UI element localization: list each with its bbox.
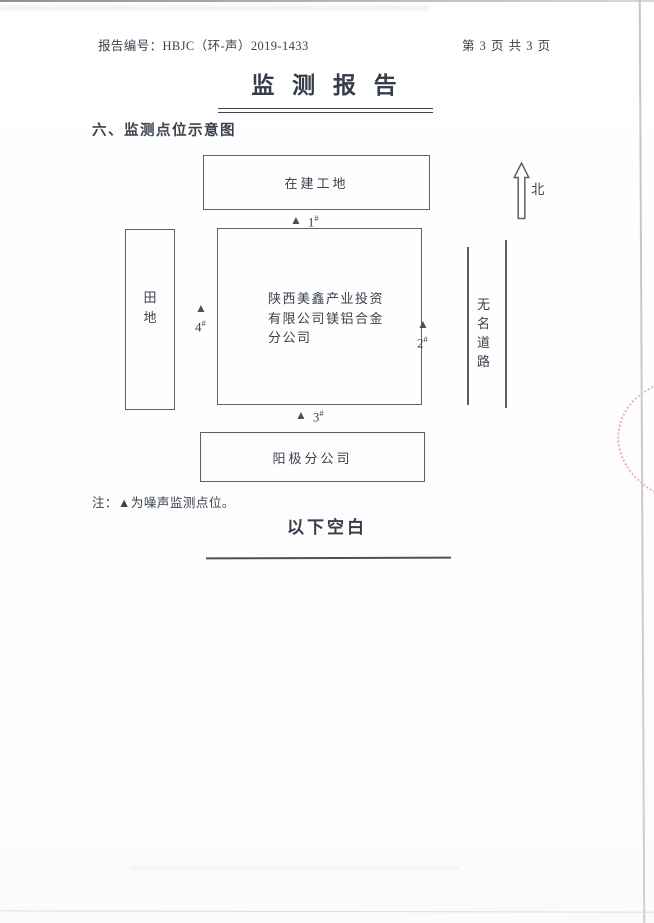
triangle-marker-icon: ▲ xyxy=(295,409,307,421)
scan-artifact xyxy=(130,866,460,870)
field-box: 田地 xyxy=(125,229,175,410)
blank-below-text: 以下空白 xyxy=(0,513,654,538)
point-label: 2# xyxy=(417,333,428,349)
triangle-marker-icon: ▲ xyxy=(290,214,302,226)
scan-edge-top xyxy=(0,0,654,2)
construction-site-box: 在建工地 xyxy=(203,155,430,210)
anode-branch-box: 阳极分公司 xyxy=(200,432,425,482)
road-line-right xyxy=(505,240,507,408)
company-name: 陕西美鑫产业投资 有限公司镁铝合金 分公司 xyxy=(268,289,400,348)
closing-rule xyxy=(206,557,451,559)
point-label: 3# xyxy=(313,407,324,423)
triangle-marker-icon: ▲ xyxy=(417,318,429,330)
company-name-line2: 有限公司镁铝合金 xyxy=(268,309,400,329)
north-arrow-icon xyxy=(513,162,530,220)
section-heading: 六、监测点位示意图 xyxy=(92,119,236,140)
anode-branch-label: 阳极分公司 xyxy=(272,448,352,467)
report-number: 报告编号：HBJC（环-声）2019-1433 xyxy=(98,35,309,54)
scan-edge-bottom xyxy=(0,910,654,912)
monitoring-point-1: ▲ 1# xyxy=(290,212,319,228)
company-name-line1: 陕西美鑫产业投资 xyxy=(268,289,400,309)
red-stamp-edge xyxy=(609,368,654,514)
title-underline xyxy=(218,108,433,113)
triangle-marker-icon: ▲ xyxy=(195,302,207,314)
page-indicator: 第 3 页 共 3 页 xyxy=(462,35,551,54)
field-label: 田地 xyxy=(144,288,157,328)
road-label: 无名道路 xyxy=(477,295,490,371)
point-label: 4# xyxy=(195,317,206,333)
document-page: 报告编号：HBJC（环-声）2019-1433 第 3 页 共 3 页 监 测 … xyxy=(0,0,654,923)
monitoring-point-3: ▲ 3# xyxy=(295,407,324,423)
monitoring-point-4: ▲ 4# xyxy=(195,302,207,333)
scan-artifact xyxy=(0,5,430,11)
construction-site-label: 在建工地 xyxy=(284,173,348,192)
road-line-left xyxy=(467,247,469,405)
note-line: 注：▲为噪声监测点位。 xyxy=(92,492,235,511)
company-name-line3: 分公司 xyxy=(268,328,400,348)
point-label: 1# xyxy=(308,212,319,228)
monitoring-point-2: ▲ 2# xyxy=(417,318,429,349)
document-title: 监 测 报 告 xyxy=(0,66,654,100)
north-label: 北 xyxy=(531,178,545,198)
